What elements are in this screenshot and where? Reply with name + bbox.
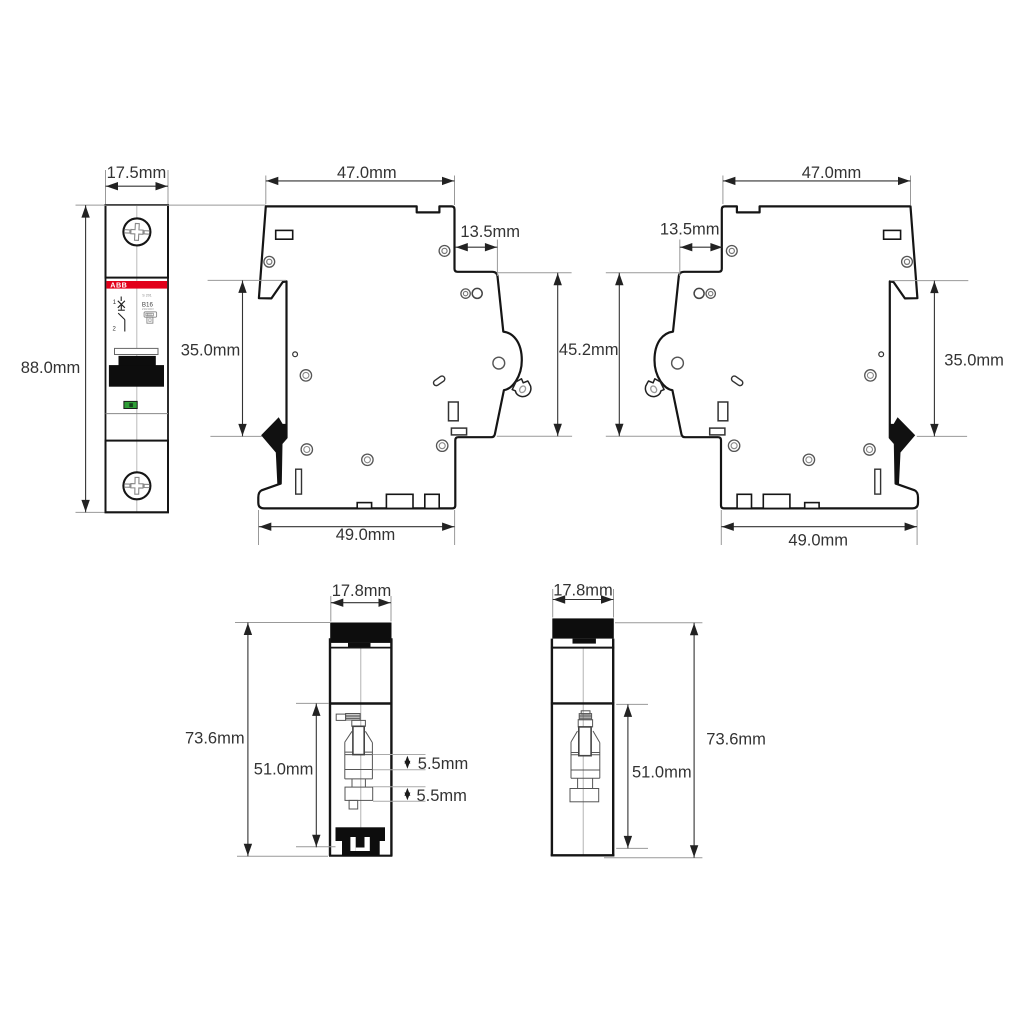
svg-text:45.2mm: 45.2mm: [559, 341, 619, 359]
svg-text:35.0mm: 35.0mm: [944, 351, 1004, 369]
svg-text:51.0mm: 51.0mm: [254, 761, 314, 779]
svg-text:13.5mm: 13.5mm: [460, 223, 520, 241]
svg-text:88.0mm: 88.0mm: [21, 359, 81, 377]
svg-text:51.0mm: 51.0mm: [632, 764, 692, 782]
svg-text:1: 1: [113, 300, 117, 306]
svg-text:17.8mm: 17.8mm: [553, 581, 613, 599]
svg-text:5.5mm: 5.5mm: [417, 787, 467, 805]
svg-text:2: 2: [113, 327, 117, 333]
svg-text:47.0mm: 47.0mm: [802, 164, 862, 182]
svg-text:47.0mm: 47.0mm: [337, 164, 397, 182]
svg-text:230/400V: 230/400V: [142, 307, 154, 311]
svg-text:17.8mm: 17.8mm: [332, 582, 392, 600]
svg-text:73.6mm: 73.6mm: [185, 729, 245, 747]
svg-text:49.0mm: 49.0mm: [336, 526, 396, 544]
svg-text:S 201: S 201: [142, 293, 151, 297]
svg-text:35.0mm: 35.0mm: [181, 341, 241, 359]
svg-text:17.5mm: 17.5mm: [107, 164, 167, 182]
svg-text:ABB: ABB: [110, 281, 127, 290]
svg-text:73.6mm: 73.6mm: [706, 731, 766, 749]
svg-text:13.5mm: 13.5mm: [660, 221, 720, 239]
svg-text:5.5mm: 5.5mm: [418, 755, 468, 773]
svg-text:49.0mm: 49.0mm: [788, 532, 848, 550]
